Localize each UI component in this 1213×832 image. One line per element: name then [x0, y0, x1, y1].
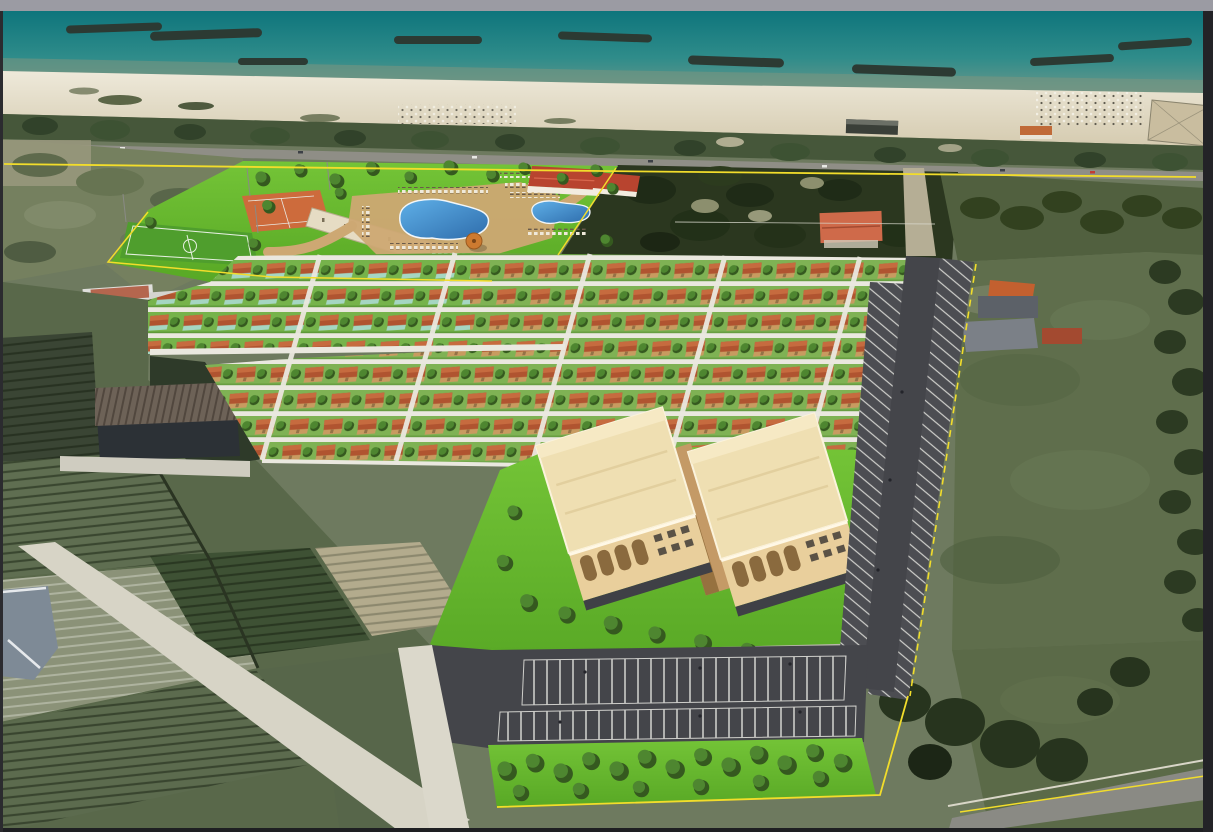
- east-field: [940, 252, 1213, 669]
- beach-building-orange-roof: [1020, 126, 1052, 139]
- umbrella-cluster-west: [398, 104, 516, 124]
- existing-villa: [819, 211, 882, 248]
- frame-left-bar: [0, 11, 3, 832]
- frame-right-bar: [1203, 11, 1213, 832]
- frame-bottom-bar: [3, 828, 1203, 832]
- aerial-render-image: [0, 0, 1213, 832]
- frame-top-bar: [0, 0, 1213, 11]
- fenced-beach-lot: [1148, 100, 1210, 146]
- umbrella-cluster-east: [1036, 92, 1144, 126]
- beach-bar: [846, 119, 898, 135]
- scene-canvas: [0, 0, 1213, 832]
